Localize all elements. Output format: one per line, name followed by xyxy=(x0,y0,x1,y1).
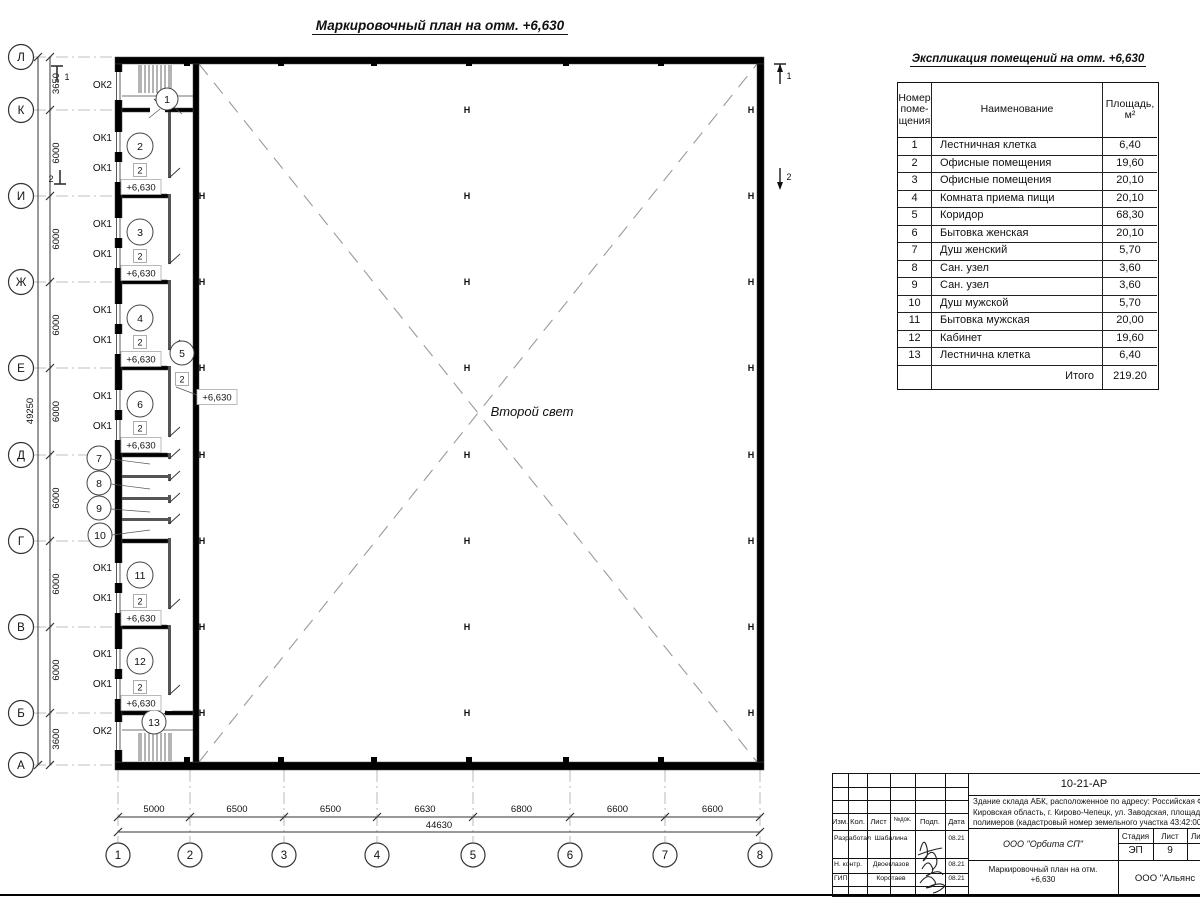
stamp-line xyxy=(968,828,1200,829)
room-num-cell: 11 xyxy=(898,313,932,331)
room-num-cell: 7 xyxy=(898,243,932,261)
room-number: 2 xyxy=(137,141,143,153)
floor-type-tag: 2 xyxy=(137,683,142,693)
stamp-line xyxy=(832,858,968,859)
room-name-cell: Бытовка мужская xyxy=(932,313,1103,331)
room-num-cell: 13 xyxy=(898,348,932,366)
window-label: ОК1 xyxy=(93,335,113,346)
room-area-cell: 3,60 xyxy=(1103,278,1157,296)
stage-value: 1 xyxy=(1187,845,1200,856)
signature-scribble xyxy=(920,877,945,893)
room-num-cell: 12 xyxy=(898,331,932,349)
column-mark: Н xyxy=(199,450,206,460)
room-name-cell: Комната приема пищи xyxy=(932,191,1103,209)
floor-type-tag: 2 xyxy=(179,375,184,385)
window-label: ОК1 xyxy=(93,163,113,174)
section-mark-label: 2 xyxy=(48,174,53,184)
room-area-cell: 20,10 xyxy=(1103,173,1157,191)
sign-date: 08.21 xyxy=(945,875,968,882)
dim-label: 6000 xyxy=(51,401,62,422)
room-num-cell: 1 xyxy=(898,138,932,156)
doc-code: 10-21-АР xyxy=(968,778,1200,790)
room-area-cell: 20,10 xyxy=(1103,226,1157,244)
stage-value: ЭП xyxy=(1118,845,1153,856)
sign-role: ГИП xyxy=(834,875,847,882)
table-total-row: Итого219.20 xyxy=(898,366,1158,389)
column-mark: Н xyxy=(199,277,206,287)
column-mark: Н xyxy=(199,363,206,373)
window-label: ОК1 xyxy=(93,679,113,690)
column-mark: Н xyxy=(748,363,755,373)
room-name-cell: Офисные помещения xyxy=(932,156,1103,174)
project-address-line: Здание склада АБК, расположенное по адре… xyxy=(973,797,1200,806)
dim-label: 6000 xyxy=(51,314,62,335)
room-area-cell: 5,70 xyxy=(1103,296,1157,314)
room-name-cell: Сан. узел xyxy=(932,278,1103,296)
sign-role: Разработал xyxy=(834,835,871,842)
room-area-cell: 6,40 xyxy=(1103,348,1157,366)
room-num-cell: 9 xyxy=(898,278,932,296)
table-row: 5Коридор68,30 xyxy=(898,208,1158,226)
dim-label: 6500 xyxy=(320,804,341,815)
column-mark: Н xyxy=(464,536,471,546)
column-mark: Н xyxy=(464,277,471,287)
room-name-cell: Душ мужской xyxy=(932,296,1103,314)
total-value: 219.20 xyxy=(1103,366,1157,389)
axis-letter: А xyxy=(17,760,25,772)
explication-title: Экспликация помещений на отм. +6,630 xyxy=(897,53,1159,65)
room-area-cell: 68,30 xyxy=(1103,208,1157,226)
room-num-cell: 8 xyxy=(898,261,932,279)
axis-number: 5 xyxy=(470,850,476,862)
sign-name: Двоеглазов xyxy=(867,861,915,868)
column-mark: Н xyxy=(199,191,206,201)
room-name-cell: Лестнична клетка xyxy=(932,348,1103,366)
dim-label: 6000 xyxy=(51,142,62,163)
room-name-cell: Лестничная клетка xyxy=(932,138,1103,156)
column-mark: Н xyxy=(464,450,471,460)
dim-label: 6600 xyxy=(702,804,723,815)
stamp-line xyxy=(832,800,968,801)
stage-header: Стадия xyxy=(1118,832,1153,841)
column-mark: Н xyxy=(748,277,755,287)
room-name-cell: Коридор xyxy=(932,208,1103,226)
project-address-line: Кировская область, г. Кирово-Чепецк, ул.… xyxy=(973,808,1200,817)
stamp-col-header: Подп. xyxy=(915,817,945,826)
room-num-cell: 10 xyxy=(898,296,932,314)
axis-number: 4 xyxy=(374,850,381,862)
axis-letter: Л xyxy=(17,52,25,64)
signature-scribble xyxy=(918,842,942,870)
elevation-tag: +6,630 xyxy=(126,614,155,625)
table-row: 10Душ мужской5,70 xyxy=(898,296,1158,314)
window-label: ОК1 xyxy=(93,219,113,230)
room-number: 13 xyxy=(148,717,160,729)
elevation-tag: +6,630 xyxy=(126,441,155,452)
axis-number: 2 xyxy=(187,850,193,862)
window-label: ОК1 xyxy=(93,649,113,660)
window-label: ОК1 xyxy=(93,305,113,316)
section-mark-label: 1 xyxy=(64,72,69,82)
room-number: 12 xyxy=(134,656,146,668)
dim-label: 3600 xyxy=(51,728,62,749)
window-label: ОК1 xyxy=(93,593,113,604)
elevation-tag: +6,630 xyxy=(126,699,155,710)
axis-letter: В xyxy=(17,622,25,634)
room-name-cell: Душ женский xyxy=(932,243,1103,261)
stamp-col-header: Кол. xyxy=(848,817,867,826)
total-label: Итого xyxy=(932,366,1103,389)
column-mark: Н xyxy=(748,450,755,460)
table-row: 3Офисные помещения20,10 xyxy=(898,173,1158,191)
axis-number: 3 xyxy=(281,850,287,862)
room-number: 11 xyxy=(135,570,146,582)
column-mark: Н xyxy=(748,105,755,115)
table-row: 9Сан. узел3,60 xyxy=(898,278,1158,296)
room-number: 7 xyxy=(96,453,102,465)
room-number: 1 xyxy=(164,94,170,106)
window-label: ОК2 xyxy=(93,80,113,91)
sign-date: 08.21 xyxy=(945,861,968,868)
column-mark: Н xyxy=(199,536,206,546)
axis-number: 6 xyxy=(567,850,573,862)
elevation-tag: +6,630 xyxy=(126,183,155,194)
axis-letter: Д xyxy=(17,450,25,462)
stamp-line xyxy=(832,886,968,887)
room-number: 9 xyxy=(96,503,102,515)
stamp-col-header: Изм. xyxy=(832,817,848,826)
dim-label: 6500 xyxy=(226,804,247,815)
dim-label: 5000 xyxy=(143,804,164,815)
table-body: 1Лестничная клетка6,402Офисные помещения… xyxy=(898,138,1158,366)
stamp-line xyxy=(968,795,1200,796)
room-area-cell: 3,60 xyxy=(1103,261,1157,279)
column-mark: Н xyxy=(199,622,206,632)
org-name: ООО "Орбита СП" xyxy=(968,839,1118,849)
stamp-line xyxy=(968,860,1200,861)
column-mark: Н xyxy=(464,191,471,201)
table-row: 2Офисные помещения19,60 xyxy=(898,156,1158,174)
room-num-cell: 6 xyxy=(898,226,932,244)
table-row: 7Душ женский5,70 xyxy=(898,243,1158,261)
floor-type-tag: 2 xyxy=(137,166,142,176)
axis-letter: К xyxy=(18,105,25,117)
room-number: 8 xyxy=(96,478,102,490)
stamp-line xyxy=(832,787,968,788)
stamp-line xyxy=(915,773,916,897)
stamp-col-header: Лист xyxy=(867,817,890,826)
sign-name: Шабалина xyxy=(867,835,915,842)
table-header-cell: Наименование xyxy=(932,83,1103,138)
room-name-cell: Бытовка женская xyxy=(932,226,1103,244)
room-name-cell: Офисные помещения xyxy=(932,173,1103,191)
window-label: ОК1 xyxy=(93,249,113,260)
column-mark: Н xyxy=(748,536,755,546)
table-row: 13Лестнична клетка6,40 xyxy=(898,348,1158,366)
column-mark: Н xyxy=(748,708,755,718)
axis-letter: Е xyxy=(17,363,25,375)
column-mark: Н xyxy=(464,363,471,373)
elevation-tag: +6,630 xyxy=(126,355,155,366)
section-mark-label: 2 xyxy=(786,172,791,182)
axis-number: 8 xyxy=(757,850,763,862)
project-address-line: полимеров (кадастровый номер земельного … xyxy=(973,818,1200,827)
table-row: 12Кабинет19,60 xyxy=(898,331,1158,349)
window-label: ОК2 xyxy=(93,726,113,737)
stage-header: Листов xyxy=(1187,832,1200,841)
column-mark: Н xyxy=(464,622,471,632)
table-header-cell: Номерпоме-щения xyxy=(898,83,932,138)
room-area-cell: 20,10 xyxy=(1103,191,1157,209)
room-num-cell: 5 xyxy=(898,208,932,226)
stamp-line xyxy=(832,830,968,831)
room-number: 3 xyxy=(137,227,143,239)
org2-name: ООО "Альянс xyxy=(1120,873,1200,884)
dim-label: 6630 xyxy=(414,804,435,815)
stamp-col-header: Дата xyxy=(945,817,968,826)
sign-name: Коротаев xyxy=(867,875,915,882)
table-row: 1Лестничная клетка6,40 xyxy=(898,138,1158,156)
window-label: ОК1 xyxy=(93,421,113,432)
stamp-line xyxy=(832,896,1200,897)
dim-label: 6000 xyxy=(51,573,62,594)
room-name-cell: Кабинет xyxy=(932,331,1103,349)
dim-overall-label: 44630 xyxy=(426,820,452,831)
floor-type-tag: 2 xyxy=(137,597,142,607)
axis-number: 1 xyxy=(115,850,121,862)
table-row: 11Бытовка мужская20,00 xyxy=(898,313,1158,331)
explication-table: Номерпоме-щенияНаименованиеПлощадь,м²1Ле… xyxy=(897,82,1159,390)
column-mark: Н xyxy=(748,622,755,632)
stamp-line xyxy=(832,773,1200,774)
dim-label: 6600 xyxy=(607,804,628,815)
axis-letter: Г xyxy=(18,536,25,548)
table-row: 8Сан. узел3,60 xyxy=(898,261,1158,279)
window-label: ОК1 xyxy=(93,563,113,574)
column-mark: Н xyxy=(748,191,755,201)
table-row: 4Комната приема пищи20,10 xyxy=(898,191,1158,209)
dim-label: 6000 xyxy=(51,228,62,249)
room-area-cell: 6,40 xyxy=(1103,138,1157,156)
second-light-label: Второй свет xyxy=(491,404,574,419)
room-area-cell: 20,00 xyxy=(1103,313,1157,331)
axis-letter: Ж xyxy=(16,277,27,289)
sign-role: Н. контр. xyxy=(834,861,862,868)
dim-label: 6800 xyxy=(511,804,532,815)
floor-type-tag: 2 xyxy=(137,338,142,348)
window-label: ОК1 xyxy=(93,391,113,402)
floor-type-tag: 2 xyxy=(137,424,142,434)
sheet: { "plan": { "title": "Маркировочный план… xyxy=(0,0,1200,900)
section-mark-label: 1 xyxy=(786,71,791,81)
column-mark: Н xyxy=(199,708,206,718)
floor-type-tag: 2 xyxy=(137,252,142,262)
stage-header: Лист xyxy=(1153,832,1187,841)
dim-label: 6000 xyxy=(51,659,62,680)
room-num-cell: 3 xyxy=(898,173,932,191)
dim-overall-label: 49250 xyxy=(25,398,36,424)
stamp-line xyxy=(832,813,968,814)
room-number: 4 xyxy=(137,313,143,325)
room-area-cell: 5,70 xyxy=(1103,243,1157,261)
room-area-cell: 19,60 xyxy=(1103,331,1157,349)
doc-title-line: Маркировочный план на отм. xyxy=(968,865,1118,874)
room-name-cell: Сан. узел xyxy=(932,261,1103,279)
room-num-cell: 2 xyxy=(898,156,932,174)
window-label: ОК1 xyxy=(93,133,113,144)
stage-value: 9 xyxy=(1153,845,1187,856)
room-area-cell: 19,60 xyxy=(1103,156,1157,174)
sign-date: 08.21 xyxy=(945,835,968,842)
stamp-line xyxy=(832,773,833,897)
title-block: 10-21-АРЗдание склада АБК, расположенное… xyxy=(832,773,1200,897)
table-header-cell: Площадь,м² xyxy=(1103,83,1157,138)
column-mark: Н xyxy=(464,105,471,115)
table-row: 6Бытовка женская20,10 xyxy=(898,226,1158,244)
stamp-col-header: №док. xyxy=(890,817,915,823)
dim-label: 6000 xyxy=(51,487,62,508)
axis-letter: Б xyxy=(17,708,25,720)
table-header-row: Номерпоме-щенияНаименованиеПлощадь,м² xyxy=(898,83,1158,138)
elevation-tag: +6,630 xyxy=(126,269,155,280)
doc-title-line: +6,630 xyxy=(968,875,1118,884)
room-num-cell: 4 xyxy=(898,191,932,209)
axis-letter: И xyxy=(17,191,25,203)
room-number: 6 xyxy=(137,399,143,411)
elevation-tag: +6,630 xyxy=(202,393,231,404)
sheet-frame-line xyxy=(0,894,1200,896)
room-number: 5 xyxy=(179,348,185,360)
column-mark: Н xyxy=(464,708,471,718)
axis-number: 7 xyxy=(662,850,668,862)
room-number: 10 xyxy=(94,530,106,542)
